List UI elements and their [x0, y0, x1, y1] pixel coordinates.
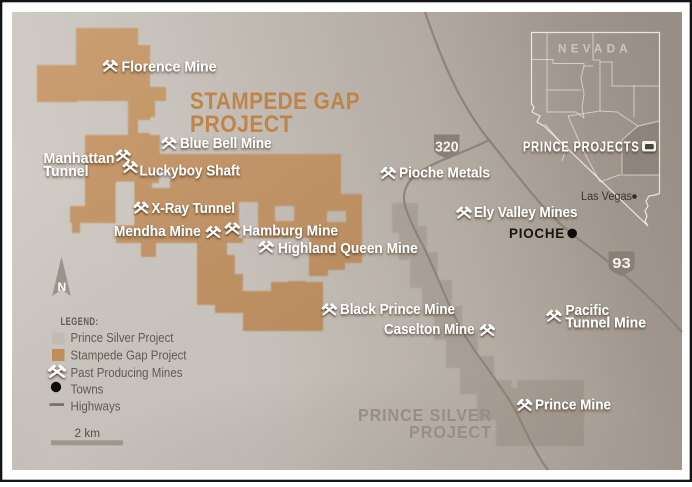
svg-text:Black Prince Mine: Black Prince Mine	[340, 301, 455, 318]
svg-text:93: 93	[612, 255, 631, 272]
svg-text:PROJECT: PROJECT	[190, 111, 293, 138]
svg-text:PRINCE PROJECTS: PRINCE PROJECTS	[523, 139, 640, 156]
svg-text:LEGEND:: LEGEND:	[61, 316, 99, 328]
svg-text:Mendha Mine: Mendha Mine	[114, 223, 201, 240]
svg-text:Blue Bell Mine: Blue Bell Mine	[180, 135, 272, 152]
svg-text:Prince Mine: Prince Mine	[535, 397, 611, 414]
svg-text:Las Vegas: Las Vegas	[581, 191, 632, 203]
svg-text:NEVADA: NEVADA	[558, 44, 632, 56]
svg-text:Caselton Mine: Caselton Mine	[384, 321, 475, 338]
svg-text:Highways: Highways	[71, 400, 121, 414]
svg-text:X-Ray Tunnel: X-Ray Tunnel	[152, 200, 236, 217]
svg-text:Past Producing Mines: Past Producing Mines	[71, 366, 183, 380]
svg-text:Hamburg Mine: Hamburg Mine	[243, 223, 339, 240]
svg-text:Prince Silver Project: Prince Silver Project	[71, 331, 174, 345]
svg-text:Stampede Gap Project: Stampede Gap Project	[71, 349, 187, 363]
svg-text:2 km: 2 km	[75, 428, 101, 440]
svg-text:320: 320	[435, 139, 459, 156]
svg-text:Towns: Towns	[71, 383, 104, 397]
svg-text:Florence Mine: Florence Mine	[122, 59, 217, 76]
svg-text:PROJECT: PROJECT	[409, 422, 492, 442]
svg-text:PIOCHE: PIOCHE	[509, 225, 565, 241]
svg-text:N: N	[57, 280, 66, 294]
svg-text:Highland Queen Mine: Highland Queen Mine	[278, 240, 418, 257]
svg-text:Tunnel Mine: Tunnel Mine	[566, 315, 647, 332]
svg-text:Tunnel: Tunnel	[44, 163, 89, 180]
svg-text:Luckyboy Shaft: Luckyboy Shaft	[140, 163, 241, 180]
svg-text:Pioche Metals: Pioche Metals	[399, 165, 490, 182]
svg-text:Ely Valley Mines: Ely Valley Mines	[474, 204, 578, 221]
